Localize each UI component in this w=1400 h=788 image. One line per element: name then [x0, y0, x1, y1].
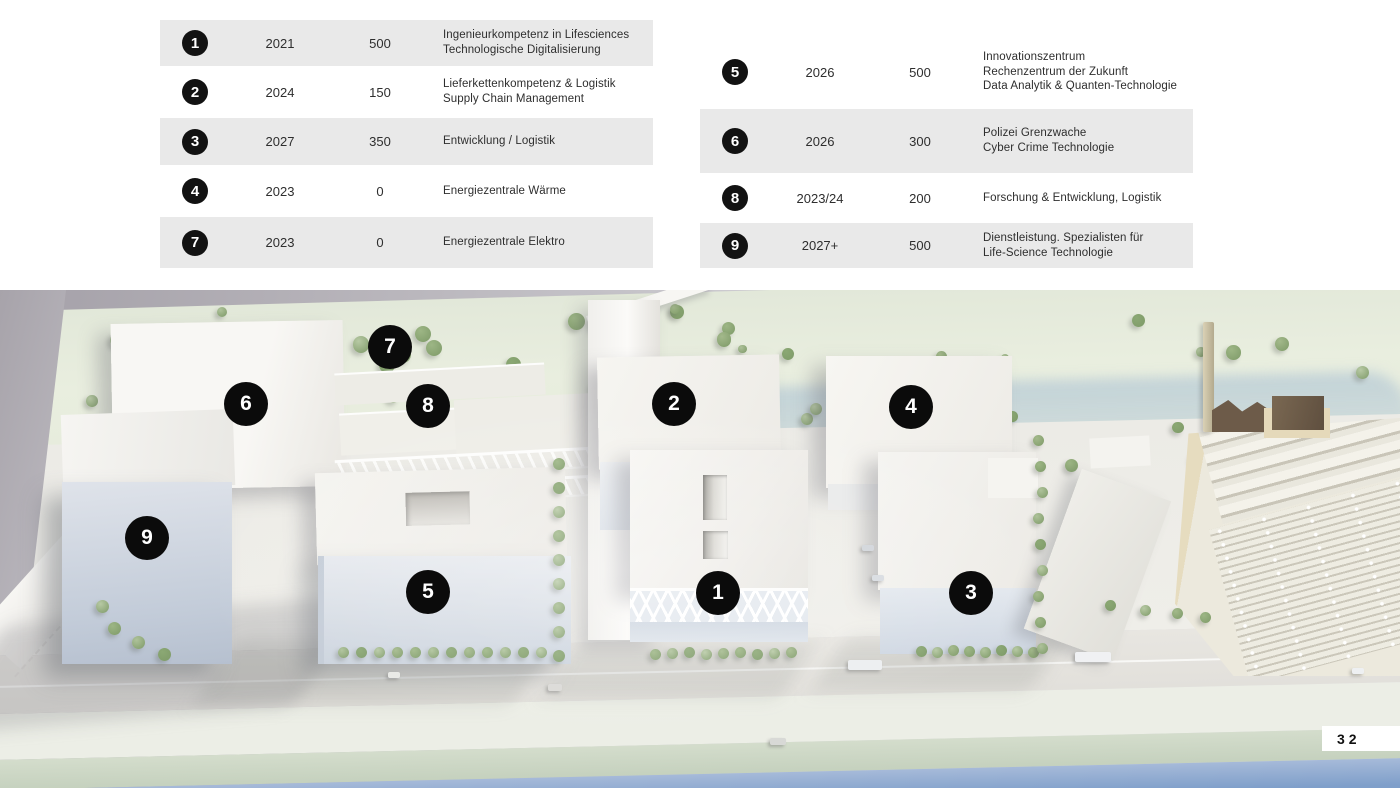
description-cell: Polizei Grenzwache Cyber Crime Technolog…: [970, 126, 1193, 156]
model-car: [862, 545, 874, 551]
value-cell: 500: [870, 65, 970, 80]
row-badge-cell: 5: [700, 59, 770, 85]
table-row-8: 8 2023/24 200 Forschung & Entwicklung, L…: [700, 173, 1193, 223]
slide: 1 2021 500 Ingenieurkompetenz in Lifesci…: [0, 0, 1400, 788]
building-number-badge: 1: [182, 30, 208, 56]
model-car: [1075, 652, 1111, 662]
description-cell: Energiezentrale Elektro: [430, 235, 653, 250]
description-cell: Energiezentrale Wärme: [430, 184, 653, 199]
model-car: [872, 575, 884, 581]
model-car: [548, 684, 562, 691]
year-cell: 2027+: [770, 238, 870, 253]
building-number-badge: 3: [182, 129, 208, 155]
description-cell: Dienstleistung. Spezialisten für Life-Sc…: [970, 231, 1193, 261]
value-cell: 300: [870, 134, 970, 149]
row-badge-cell: 6: [700, 128, 770, 154]
year-cell: 2023: [230, 184, 330, 199]
year-cell: 2026: [770, 65, 870, 80]
page-number-box: 32: [1322, 726, 1400, 751]
value-cell: 200: [870, 191, 970, 206]
building-number-badge: 5: [722, 59, 748, 85]
description-cell: Innovationszentrum Rechenzentrum der Zuk…: [970, 50, 1193, 95]
description-cell: Lieferkettenkompetenz & Logistik Supply …: [430, 77, 653, 107]
row-badge-cell: 3: [160, 129, 230, 155]
model-car: [1352, 668, 1364, 674]
site-model-photo: [0, 290, 1400, 788]
value-cell: 0: [330, 235, 430, 250]
year-cell: 2026: [770, 134, 870, 149]
cars-layer: [0, 290, 1400, 788]
value-cell: 150: [330, 85, 430, 100]
table-row-3: 3 2027 350 Entwicklung / Logistik: [160, 118, 653, 165]
row-badge-cell: 9: [700, 233, 770, 259]
row-badge-cell: 1: [160, 30, 230, 56]
year-cell: 2023/24: [770, 191, 870, 206]
table-row-2: 2 2024 150 Lieferkettenkompetenz & Logis…: [160, 66, 653, 118]
row-badge-cell: 4: [160, 178, 230, 204]
table-row-4: 4 2023 0 Energiezentrale Wärme: [160, 165, 653, 217]
project-table-left: 1 2021 500 Ingenieurkompetenz in Lifesci…: [160, 20, 653, 268]
year-cell: 2021: [230, 36, 330, 51]
building-number-badge: 2: [182, 79, 208, 105]
table-row-9: 9 2027+ 500 Dienstleistung. Spezialisten…: [700, 223, 1193, 268]
table-row-7: 7 2023 0 Energiezentrale Elektro: [160, 217, 653, 268]
page-number: 32: [1337, 731, 1361, 747]
project-table-right: 5 2026 500 Innovationszentrum Rechenzent…: [700, 35, 1193, 268]
building-number-badge: 9: [722, 233, 748, 259]
value-cell: 0: [330, 184, 430, 199]
row-badge-cell: 2: [160, 79, 230, 105]
description-cell: Ingenieurkompetenz in Lifesciences Techn…: [430, 28, 653, 58]
model-car: [848, 660, 882, 670]
description-cell: Forschung & Entwicklung, Logistik: [970, 191, 1193, 206]
row-badge-cell: 7: [160, 230, 230, 256]
building-number-badge: 4: [182, 178, 208, 204]
model-car: [770, 738, 786, 745]
building-number-badge: 6: [722, 128, 748, 154]
row-badge-cell: 8: [700, 185, 770, 211]
year-cell: 2023: [230, 235, 330, 250]
description-cell: Entwicklung / Logistik: [430, 134, 653, 149]
value-cell: 350: [330, 134, 430, 149]
table-row-5: 5 2026 500 Innovationszentrum Rechenzent…: [700, 35, 1193, 109]
year-cell: 2027: [230, 134, 330, 149]
model-car: [388, 672, 400, 678]
building-number-badge: 8: [722, 185, 748, 211]
building-number-badge: 7: [182, 230, 208, 256]
table-row-6: 6 2026 300 Polizei Grenzwache Cyber Crim…: [700, 109, 1193, 173]
value-cell: 500: [870, 238, 970, 253]
table-row-1: 1 2021 500 Ingenieurkompetenz in Lifesci…: [160, 20, 653, 66]
year-cell: 2024: [230, 85, 330, 100]
value-cell: 500: [330, 36, 430, 51]
